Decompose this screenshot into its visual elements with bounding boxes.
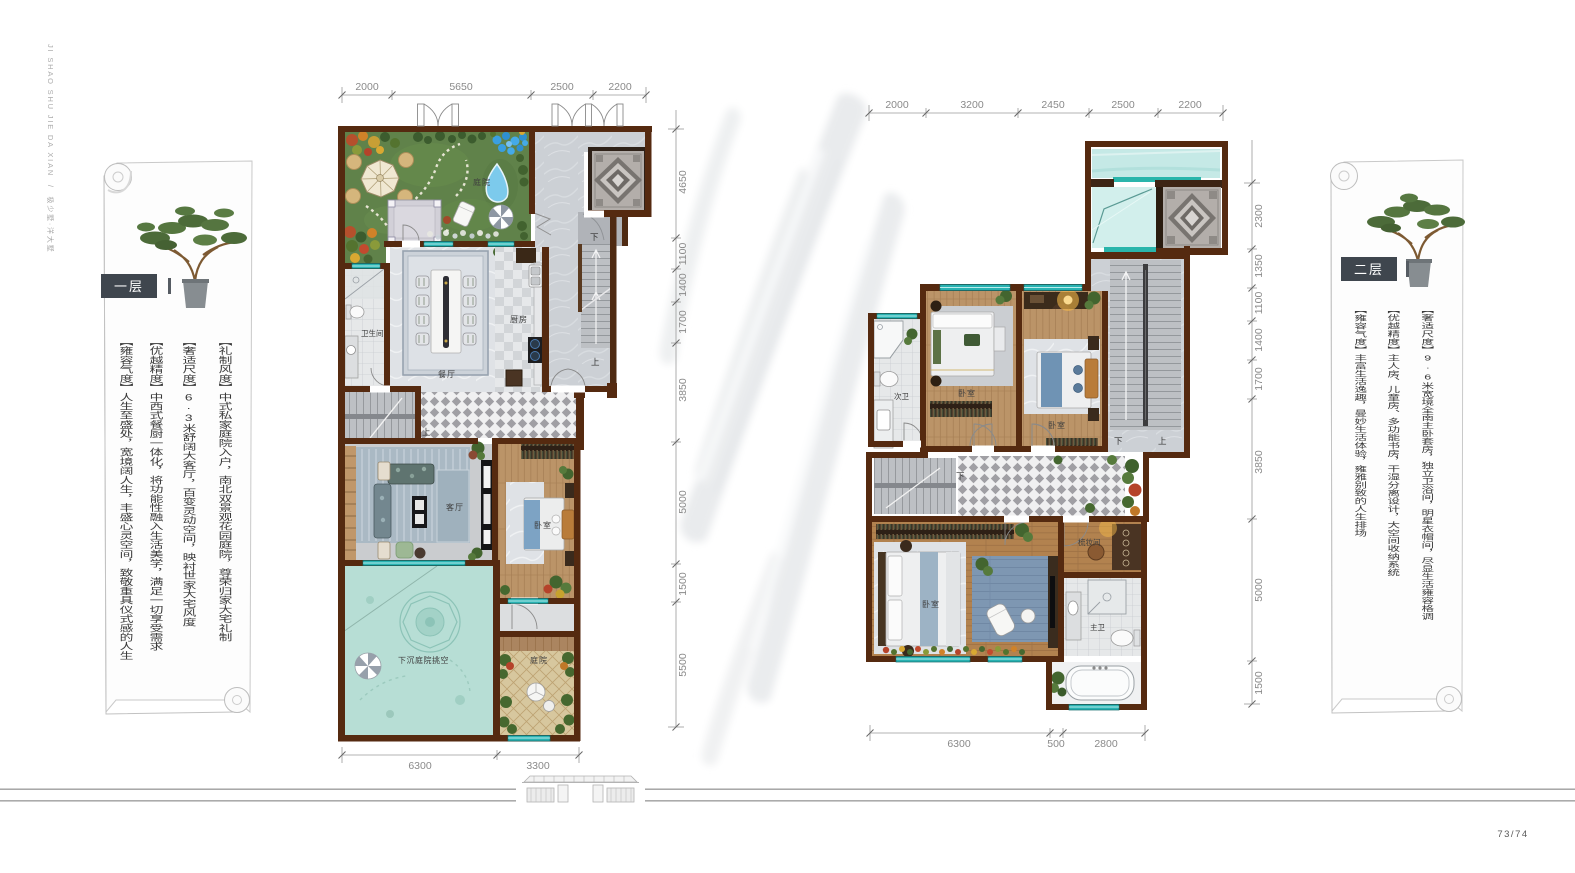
svg-text:1700: 1700 — [677, 310, 689, 334]
svg-text:2200: 2200 — [1178, 99, 1202, 111]
svg-text:3850: 3850 — [677, 378, 689, 402]
svg-text:下: 下 — [590, 232, 599, 242]
svg-text:下: 下 — [1114, 436, 1123, 446]
svg-text:2200: 2200 — [608, 81, 632, 93]
svg-text:500: 500 — [1047, 738, 1065, 750]
svg-text:3300: 3300 — [526, 760, 550, 772]
svg-text:6300: 6300 — [947, 738, 971, 750]
svg-text:1350: 1350 — [1253, 254, 1265, 278]
svg-text:卧室: 卧室 — [958, 388, 976, 398]
svg-text:2500: 2500 — [1111, 99, 1135, 111]
svg-text:庭院: 庭院 — [473, 177, 491, 187]
svg-text:卧室: 卧室 — [534, 520, 552, 530]
svg-text:6300: 6300 — [408, 760, 432, 772]
svg-text:上: 上 — [422, 427, 431, 437]
svg-text:厨房: 厨房 — [510, 314, 528, 324]
svg-text:一层: 一层 — [114, 279, 144, 294]
svg-text:上: 上 — [591, 357, 600, 367]
svg-text:卧室: 卧室 — [1048, 420, 1066, 430]
svg-text:5500: 5500 — [677, 653, 689, 677]
svg-text:1400: 1400 — [677, 273, 689, 297]
svg-text:下沉庭院挑空: 下沉庭院挑空 — [398, 655, 449, 665]
svg-text:5000: 5000 — [1253, 578, 1265, 602]
svg-text:2000: 2000 — [885, 99, 909, 111]
svg-text:4650: 4650 — [677, 170, 689, 194]
svg-text:2000: 2000 — [355, 81, 379, 93]
svg-text:次卫: 次卫 — [894, 391, 909, 401]
svg-text:梳妆间: 梳妆间 — [1078, 537, 1101, 547]
svg-text:2450: 2450 — [1041, 99, 1065, 111]
svg-text:1700: 1700 — [1253, 367, 1265, 391]
svg-text:1100: 1100 — [677, 243, 689, 266]
svg-text:主卫: 主卫 — [1090, 622, 1106, 632]
svg-text:餐厅: 餐厅 — [438, 370, 456, 379]
svg-text:2800: 2800 — [1094, 738, 1118, 750]
svg-text:上: 上 — [1158, 436, 1167, 446]
svg-text:庭院: 庭院 — [530, 655, 548, 665]
svg-text:5650: 5650 — [449, 81, 473, 93]
svg-text:1500: 1500 — [1253, 671, 1265, 695]
svg-text:5000: 5000 — [677, 490, 689, 514]
svg-text:2500: 2500 — [550, 81, 574, 93]
svg-text:卧室: 卧室 — [922, 599, 940, 609]
svg-text:卫生间: 卫生间 — [361, 328, 384, 338]
svg-text:1400: 1400 — [1253, 328, 1265, 352]
svg-text:下: 下 — [956, 471, 965, 481]
svg-text:3200: 3200 — [960, 99, 984, 111]
svg-text:2300: 2300 — [1253, 204, 1265, 228]
svg-text:73/74: 73/74 — [1497, 829, 1528, 840]
svg-text:1100: 1100 — [1253, 292, 1265, 315]
svg-text:3850: 3850 — [1253, 450, 1265, 474]
svg-text:客厅: 客厅 — [446, 502, 464, 512]
svg-text:二层: 二层 — [1354, 262, 1384, 277]
svg-text:1500: 1500 — [677, 572, 689, 596]
